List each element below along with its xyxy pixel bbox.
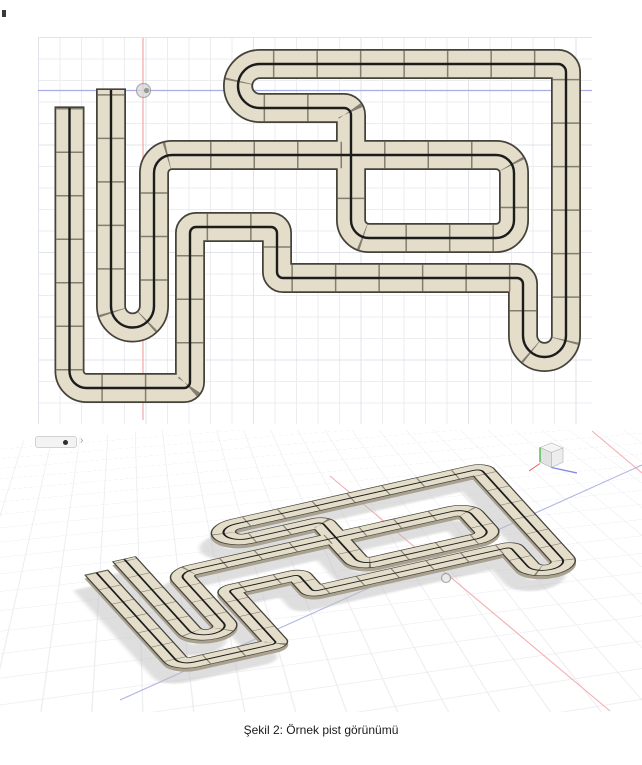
view-3d[interactable]: [71, 431, 642, 711]
chevron-right-icon[interactable]: ›: [80, 434, 83, 448]
toolbar-dot-icon: [63, 440, 68, 445]
origin-marker-2d[interactable]: [137, 84, 151, 98]
corner-mark: [2, 10, 6, 17]
viewcube-icon[interactable]: [529, 443, 577, 473]
cad-canvas[interactable]: [0, 0, 642, 765]
figure-caption: Şekil 2: Örnek pist görünümü: [0, 723, 642, 737]
axis-3d-red-stub: [592, 431, 642, 473]
origin-dot: [144, 88, 149, 93]
viewcube-blue-axis: [552, 468, 578, 474]
top-view-2d[interactable]: [38, 37, 592, 424]
origin-marker-3d: [442, 574, 451, 583]
viewcube-red-axis: [529, 464, 540, 472]
mini-toolbar[interactable]: [35, 436, 77, 448]
figure-sekil-2: › Şekil 2: Örnek pist görünümü: [0, 0, 642, 765]
